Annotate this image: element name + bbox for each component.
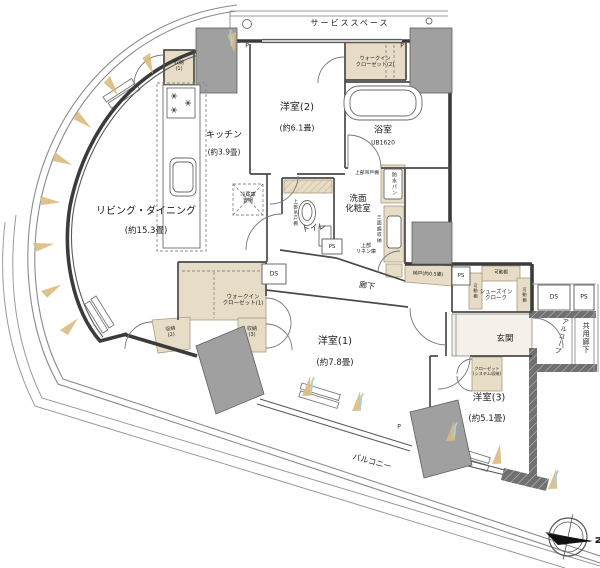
kitchen-label: キッチン bbox=[206, 131, 242, 142]
service-post bbox=[243, 20, 252, 29]
upper-linen-label: 上部リネン庫 bbox=[356, 244, 376, 256]
washroom-label: 洗面化粧室 bbox=[345, 194, 371, 214]
compass bbox=[541, 510, 596, 565]
floor-plan-drawing bbox=[0, 0, 600, 568]
movable-shelf-label: 可動棚 bbox=[473, 283, 478, 299]
ds-label: DS bbox=[550, 293, 558, 300]
movable-shelf-label: 可動棚 bbox=[522, 287, 527, 303]
bedroom1-size: (約7.8畳) bbox=[316, 358, 353, 368]
bedroom3-size: (約5.1畳) bbox=[468, 414, 505, 424]
bedroom3-label: 洋室(3) bbox=[473, 392, 505, 403]
shared-corridor-label: 共用廊下 bbox=[582, 322, 590, 354]
bathtub bbox=[344, 86, 422, 120]
kitchen-size: (約3.9畳) bbox=[208, 149, 241, 158]
entrance-floor bbox=[452, 314, 532, 356]
closet2-label: 収納(2) bbox=[165, 326, 177, 339]
bedroom2-size: (約6.1畳) bbox=[280, 123, 315, 132]
floor-plan: サービススペース P P P 収納(1) キッチン (約3.9畳) 洋室(2) … bbox=[0, 0, 600, 568]
service-space-label: サービススペース bbox=[310, 18, 389, 27]
pipe-mark: P bbox=[400, 42, 404, 49]
waterproof-pan-label: 防水パン bbox=[390, 172, 396, 196]
bedroom2-label: 洋室(2) bbox=[280, 102, 314, 114]
pipe-mark: P bbox=[245, 42, 249, 49]
ps-label: PS bbox=[580, 293, 587, 300]
pipe-mark: P bbox=[397, 423, 401, 430]
wic2-label: ウォークインクローゼット(2) bbox=[356, 56, 394, 68]
living-dining-size: (約15.3畳) bbox=[125, 226, 168, 236]
movable-shelf-label: 可動棚 bbox=[494, 270, 508, 275]
vanity-sink bbox=[387, 216, 401, 248]
wic1-label: ウォークインクローゼット(1) bbox=[223, 295, 264, 308]
entrance-label: 玄関 bbox=[496, 334, 513, 344]
bathroom-label: 浴室 bbox=[374, 126, 392, 137]
closet3-label: 収納(3) bbox=[247, 327, 257, 339]
toilet-upper-cabinet-area bbox=[284, 180, 332, 193]
compass-north-label: N bbox=[592, 536, 600, 544]
ps-label: PS bbox=[458, 273, 465, 279]
upper-cabinet-label: 上部吊戸棚 bbox=[355, 171, 379, 177]
shoes-in-cloak-label: シューズインクローク bbox=[480, 290, 513, 303]
upper-cabinet-toilet-label: 上部吊戸棚 bbox=[292, 199, 297, 227]
bedroom1-label: 洋室(1) bbox=[318, 336, 352, 348]
mirror-cabinet-label: 三面鏡収納 bbox=[375, 215, 381, 244]
ps-label: PS bbox=[329, 244, 336, 250]
refrigerator-label: 冷蔵庫置場 bbox=[240, 193, 255, 205]
bathroom-size: UB1620 bbox=[371, 139, 395, 146]
service-post bbox=[426, 18, 432, 24]
living-dining-label: リビング・ダイニング bbox=[96, 206, 196, 218]
hatched-wall-corner bbox=[501, 468, 549, 491]
ds-label: DS bbox=[270, 270, 278, 277]
closet1-label: 収納(1) bbox=[174, 61, 184, 73]
system-closet-label: クローゼット(システム収納) bbox=[473, 367, 501, 377]
